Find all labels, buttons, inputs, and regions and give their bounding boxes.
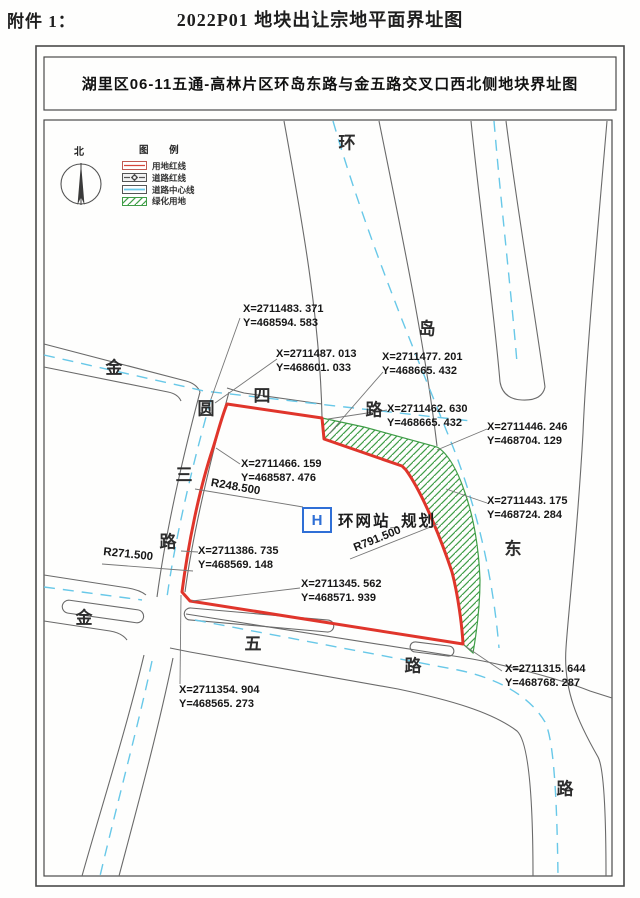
- coord-label-8: X=2711386. 735Y=468569. 148: [198, 545, 278, 572]
- green-area-swatch-icon: [122, 197, 147, 206]
- legend: 用地红线 道路红线 道路中心线 绿化用地: [122, 160, 195, 207]
- legend-item-label: 绿化用地: [152, 195, 186, 207]
- legend-item-centerline: 道路中心线: [122, 184, 195, 196]
- coord-label-2: X=2711487. 013Y=468601. 033: [276, 348, 356, 375]
- road-label-jinwu-1: 金: [76, 604, 93, 629]
- road-label-yuansan-1: 圆: [198, 395, 215, 420]
- legend-item-label: 道路中心线: [152, 184, 195, 196]
- road-label-yuansan-2: 三: [176, 461, 193, 486]
- legend-item-green-area: 绿化用地: [122, 195, 195, 207]
- coord-label-1: X=2711483. 371Y=468594. 583: [243, 303, 323, 330]
- road-label-jinsi-3: 路: [366, 396, 383, 421]
- coord-label-3: X=2711477. 201Y=468665. 432: [382, 351, 462, 378]
- legend-item-parcel-line: 用地红线: [122, 160, 195, 172]
- road-label-ring-4: 路: [557, 775, 574, 800]
- road-label-jinwu-3: 路: [405, 652, 422, 677]
- map-title: 湖里区06-11五通-高林片区环岛东路与金五路交叉口西北侧地块界址图: [44, 57, 616, 110]
- coord-label-9: X=2711345. 562Y=468571. 939: [301, 578, 381, 605]
- coord-label-11: X=2711315. 644Y=468768. 287: [505, 663, 585, 690]
- legend-item-road-redline: 道路红线: [122, 172, 195, 184]
- coord-label-4: X=2711462. 630Y=468665. 432: [387, 403, 467, 430]
- road-label-jinsi-2: 四: [254, 382, 271, 407]
- road-label-ring-3: 东: [505, 535, 522, 560]
- site-label: 环网站_规划: [338, 509, 436, 531]
- road-centerline-swatch-icon: [122, 185, 147, 194]
- coord-label-7: X=2711466. 159Y=468587. 476: [241, 458, 321, 485]
- north-arrow-icon: [61, 163, 101, 205]
- coord-label-6: X=2711443. 175Y=468724. 284: [487, 495, 567, 522]
- road-label-jinsi-1: 金: [106, 354, 123, 379]
- road-label-yuansan-3: 路: [160, 528, 177, 553]
- coord-label-10: X=2711354. 904Y=468565. 273: [179, 684, 259, 711]
- parcel-map-drawing: [0, 0, 640, 898]
- legend-title: 图 例: [139, 142, 188, 156]
- road-redline-swatch-icon: [122, 173, 147, 182]
- coord-label-5: X=2711446. 246Y=468704. 129: [487, 421, 567, 448]
- road-label-ring-2: 岛: [419, 315, 436, 340]
- red-boundary-swatch-icon: [122, 161, 147, 170]
- scanned-parcel-map-page: { "page": { "attachment_label": "附件 1：",…: [0, 0, 640, 898]
- page-title: 2022P01 地块出让宗地平面界址图: [0, 6, 640, 32]
- legend-item-label: 道路红线: [152, 172, 186, 184]
- road-centerlines: [44, 121, 558, 876]
- road-label-jinwu-2: 五: [245, 630, 262, 655]
- legend-item-label: 用地红线: [152, 160, 186, 172]
- road-label-ring-1: 环: [339, 129, 356, 154]
- site-marker-h: H: [302, 507, 332, 533]
- north-label: 北: [74, 143, 84, 158]
